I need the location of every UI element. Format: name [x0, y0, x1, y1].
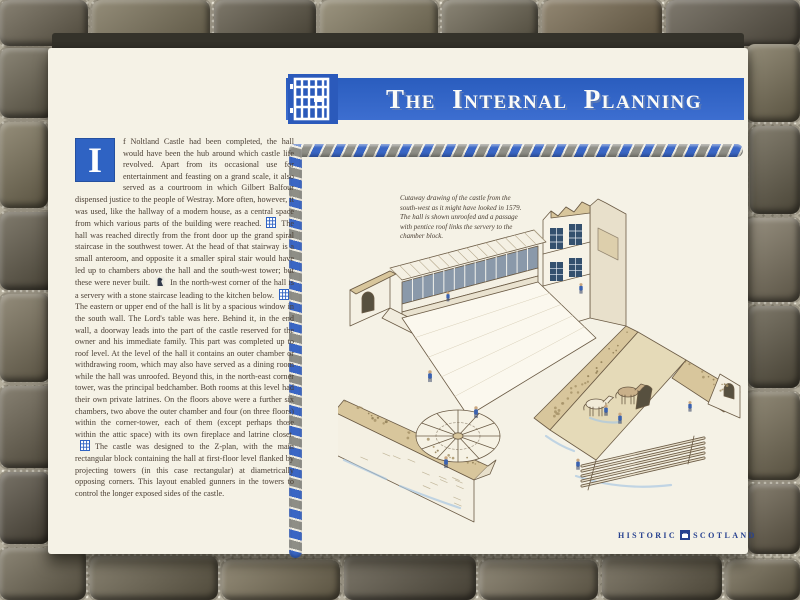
- stone: [602, 556, 722, 600]
- stone: [222, 560, 340, 600]
- stone: [726, 560, 800, 600]
- plan-grid-icon: [80, 440, 90, 451]
- panel-title: The Internal Planning: [328, 78, 702, 120]
- stone: [746, 44, 800, 122]
- body-text: If Noltland Castle had been completed, t…: [75, 136, 294, 499]
- photo-scene: The Internal Planning If Noltland Castle…: [0, 0, 800, 600]
- stone: [0, 548, 86, 600]
- stone: [344, 556, 476, 600]
- castle-cutaway-illustration: [338, 168, 743, 528]
- plan-grid-icon: [279, 289, 289, 300]
- spiral-staircase: [416, 410, 500, 462]
- stone: [750, 126, 800, 214]
- title-banner: The Internal Planning: [286, 78, 744, 120]
- stone: [748, 306, 800, 388]
- stone: [744, 392, 800, 480]
- body-segment: The castle was designed to the Z-plan, w…: [75, 442, 294, 497]
- brand-word-scotland: Scotland: [693, 531, 757, 540]
- barred-window-icon: [288, 74, 338, 124]
- sign-panel: The Internal Planning If Noltland Castle…: [48, 48, 748, 554]
- drop-cap: I: [75, 138, 115, 182]
- stone: [0, 48, 54, 118]
- plan-grid-icon: [266, 217, 276, 228]
- stone: [0, 122, 48, 208]
- body-segment: The hall was reached directly from the f…: [75, 219, 294, 287]
- figure-icon: [155, 276, 165, 287]
- historic-scotland-logo: Historic Scotland: [618, 530, 757, 540]
- brand-emblem-icon: [680, 530, 690, 540]
- stone: [0, 294, 50, 382]
- stone: [480, 560, 598, 600]
- stone: [748, 484, 800, 554]
- stone: [744, 218, 800, 302]
- brand-word-historic: Historic: [618, 531, 677, 540]
- stone: [90, 556, 218, 600]
- stone: [0, 472, 50, 544]
- rope-border-horizontal: [293, 144, 743, 157]
- body-segment: The eastern or upper end of the hall is …: [75, 302, 294, 439]
- illustration-caption: Cutaway drawing of the castle from the s…: [400, 194, 528, 242]
